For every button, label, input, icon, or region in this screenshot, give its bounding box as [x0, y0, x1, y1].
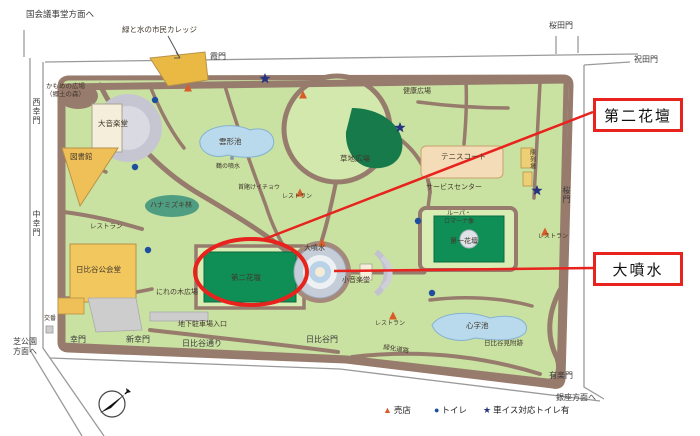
label-small-music-hall: 小音楽堂: [342, 277, 370, 286]
label-health-plaza: 健康広場: [403, 88, 431, 97]
label-citizens-college: 緑と水の市民カレッジ: [122, 25, 197, 34]
label-grass-plaza: 草地広場: [340, 154, 370, 163]
label-lupa-romana-statue: ルーパ・ ロマーナ像: [444, 211, 474, 226]
label-sakuramon: 桜門: [561, 186, 571, 204]
shop-legend-icon: ▲: [383, 405, 392, 415]
legend-shop-label: 売店: [394, 404, 411, 416]
label-kasumimon: 霞門: [210, 52, 226, 62]
label-kubikake-ginkgo: 首賭けイチョウ: [238, 185, 280, 193]
label-nirenoki-plaza: にれの木広場: [156, 289, 198, 298]
toilet-icon: [415, 218, 421, 224]
label-to-shiba-park: 芝公園 方面へ: [13, 337, 37, 357]
label-restaurant-center: レストラン: [282, 194, 312, 202]
label-parking-entrance: 地下駐車場入口: [178, 321, 227, 330]
label-to-ginza: 銀座方面へ: [556, 393, 596, 403]
compass-icon: [99, 388, 131, 417]
crane-fountain-dot: [230, 156, 234, 160]
label-large-music-hall: 大音楽堂: [98, 119, 128, 128]
label-exhibition-area: 陳列場: [527, 149, 535, 170]
park-map-page: 国会議事堂方面へ 桜田門 祝田門 霞門 西幸門 中幸門 芝公園 方面へ 幸門 新…: [0, 0, 700, 436]
toilet-icon: [429, 290, 435, 296]
label-hibiya-public-hall: 日比谷公会堂: [76, 265, 121, 274]
label-restaurant-east: レストラン: [538, 234, 568, 242]
large-fountain-center: [315, 267, 325, 277]
label-saiwaimon: 幸門: [70, 335, 86, 345]
park-map-art: [0, 0, 700, 436]
label-library: 図書館: [70, 152, 93, 161]
wheelchair-legend-icon: ★: [483, 405, 491, 416]
label-hibiyamon: 日比谷門: [306, 335, 338, 345]
label-service-center: サービスセンター: [426, 184, 482, 193]
label-hibiya-mitsuke-ruins: 日比谷見附跡: [484, 340, 523, 348]
label-yurakumon: 有楽門: [549, 371, 573, 381]
exhibition-building-2: [523, 172, 532, 186]
toilet-legend-icon: ●: [434, 405, 439, 415]
label-iwaidamon: 祝田門: [634, 55, 658, 65]
legend-toilet-label: トイレ: [441, 404, 467, 416]
label-first-flowerbed: 第一花壇: [450, 238, 478, 247]
legend-item-toilet: ● トイレ: [434, 404, 467, 416]
gate-building: [58, 298, 84, 314]
legend-item-shop: ▲ 売店: [383, 404, 411, 416]
label-tennis-court: テニスコート: [441, 152, 486, 161]
label-shinji-pond: 心字池: [466, 321, 489, 330]
label-hibiya-dori: 日比谷通り: [182, 339, 222, 349]
citizens-college-arrow: [168, 36, 180, 58]
label-to-kokkai-gijido: 国会議事堂方面へ: [26, 9, 94, 20]
parking-area: [88, 298, 142, 332]
callout-large-fountain: 大噴水: [593, 252, 683, 286]
label-nishisaiwaimon: 西幸門: [31, 98, 41, 125]
label-restaurant-south: レストラン: [375, 321, 405, 329]
toilet-icon: [132, 164, 138, 170]
legend-wheelchair-label: 車イス対応トイレ有: [493, 404, 569, 416]
label-sakuradamon: 桜田門: [549, 21, 573, 31]
label-nakasaiwaimon: 中幸門: [31, 210, 41, 237]
toilet-icon: [152, 97, 158, 103]
label-hanamizuki-grove: ハナミズキ林: [150, 202, 192, 211]
legend-item-wheelchair-toilet: ★ 車イス対応トイレ有: [483, 404, 569, 416]
label-kamome-plaza: かもめの広場 （郷土の森）: [46, 83, 85, 99]
label-large-fountain: 大噴水: [304, 245, 325, 254]
label-shinsaiwaimon: 新幸門: [126, 335, 150, 345]
label-second-flowerbed: 第二花壇: [231, 273, 261, 282]
label-crane-fountain: 鶴の噴水: [216, 164, 240, 172]
label-restaurant-west: レストラン: [90, 223, 123, 231]
label-kumogata-pond: 雲形池: [219, 137, 242, 146]
label-koban: 交番: [44, 316, 56, 324]
callout-second-flowerbed: 第二花壇: [593, 98, 683, 132]
parking-ramp: [150, 312, 208, 321]
koban-building: [46, 326, 53, 333]
toilet-icon: [145, 247, 151, 253]
